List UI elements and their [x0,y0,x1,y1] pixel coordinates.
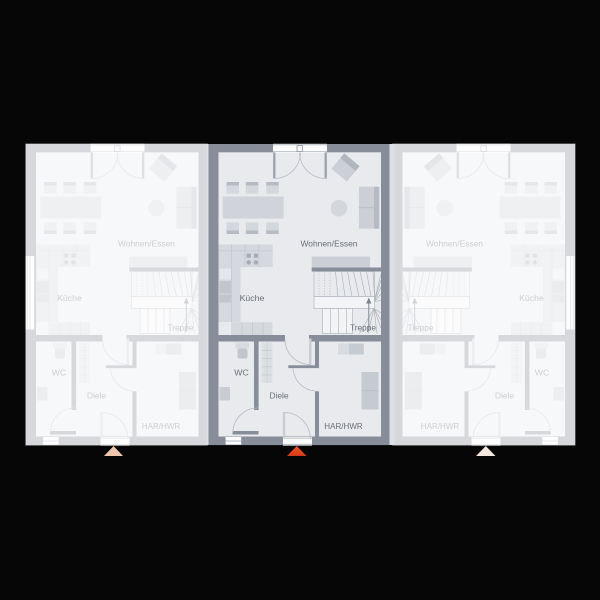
svg-text:WC: WC [234,367,249,377]
svg-text:Wohnen/Essen: Wohnen/Essen [301,238,358,248]
svg-text:Küche: Küche [240,293,265,303]
svg-text:Treppe: Treppe [350,323,376,333]
svg-text:Diele: Diele [269,390,289,400]
svg-text:HAR/HWR: HAR/HWR [324,421,363,431]
